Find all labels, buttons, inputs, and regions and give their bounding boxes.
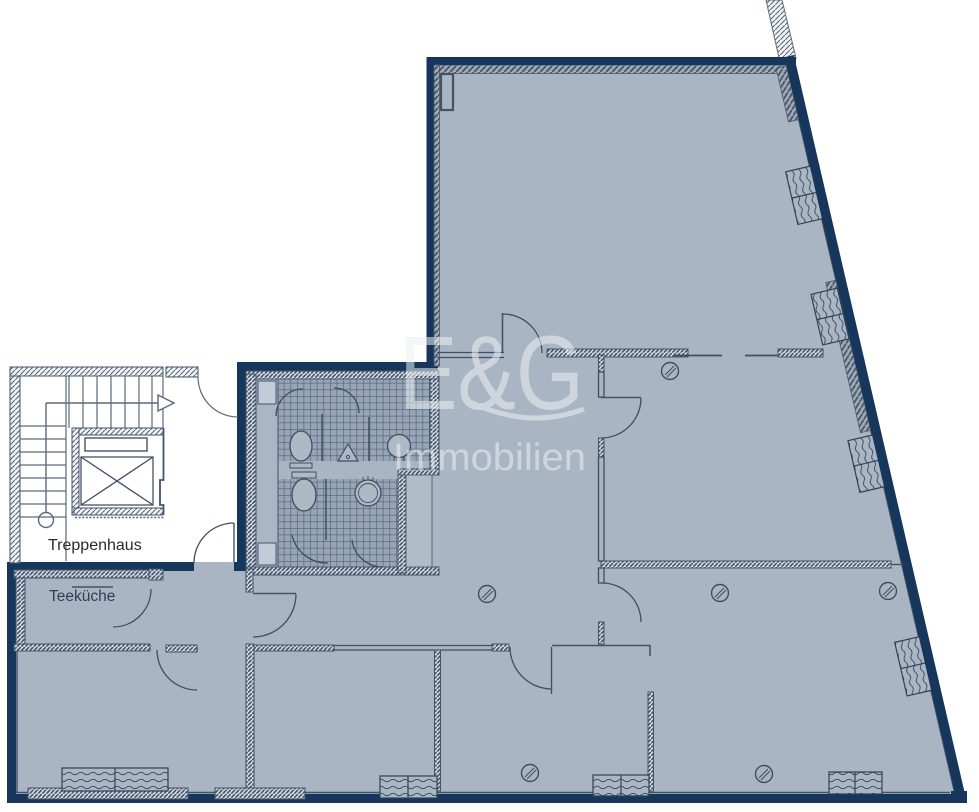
svg-text:Teeküche: Teeküche	[49, 588, 115, 605]
svg-text:Treppenhaus: Treppenhaus	[48, 537, 142, 554]
svg-text:Immobilien: Immobilien	[393, 437, 586, 479]
